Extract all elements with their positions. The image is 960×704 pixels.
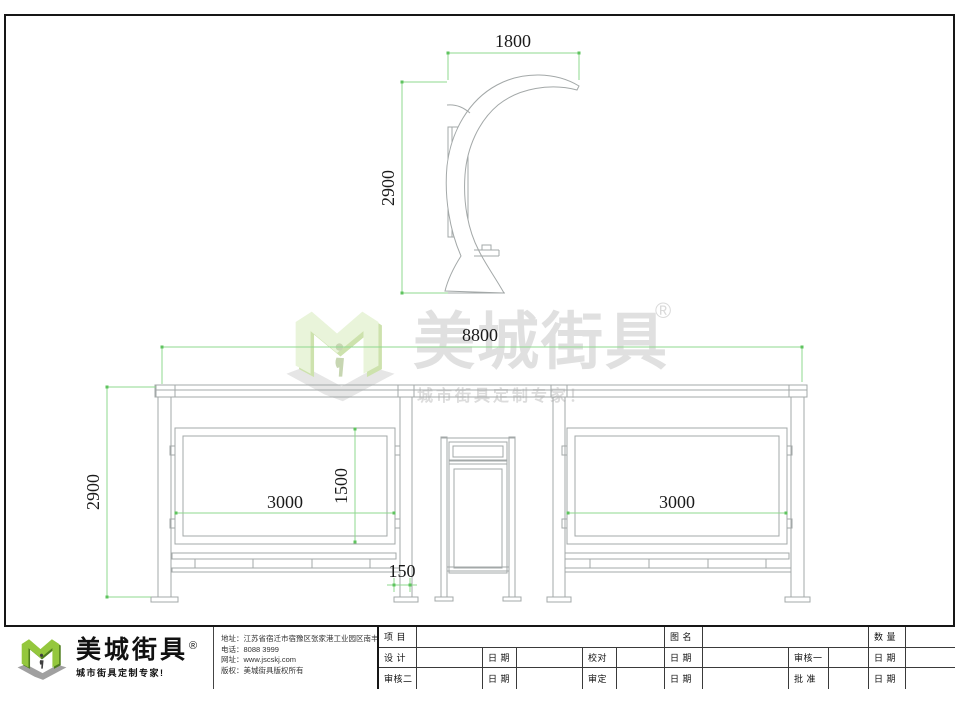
approve-value-cell xyxy=(617,668,665,689)
ratify-value-cell xyxy=(829,668,869,689)
check-label-cell: 校对 xyxy=(583,648,617,669)
date-label-cell: 日 期 xyxy=(665,648,703,669)
quantity-value-cell xyxy=(906,627,955,648)
date-label-cell: 日 期 xyxy=(483,648,517,669)
company-contact-block: 地址：江苏省宿迁市宿豫区张家港工业园区南丰路西侧1号 电话：8088 3999 … xyxy=(213,627,377,689)
review2-value-cell xyxy=(417,668,483,689)
date-label-cell: 日 期 xyxy=(483,668,517,689)
approve-label-cell: 审定 xyxy=(583,668,617,689)
quantity-label-cell: 数 量 xyxy=(869,627,906,648)
drawing-name-label-cell: 图 名 xyxy=(665,627,703,648)
date-value-cell xyxy=(906,668,955,689)
date-label-cell: 日 期 xyxy=(869,668,906,689)
date-value-cell xyxy=(703,668,789,689)
design-value-cell xyxy=(417,648,483,669)
phone-line: 电话：8088 3999 xyxy=(221,645,374,656)
drawing-info-table: 项 目 图 名 数 量 设 计 日 期 校对 日 期 审核一 日 期 审核二 日… xyxy=(377,627,955,689)
date-value-cell xyxy=(703,648,789,669)
date-value-cell xyxy=(517,648,583,669)
project-value-cell xyxy=(417,627,665,648)
date-value-cell xyxy=(517,668,583,689)
address-line: 地址：江苏省宿迁市宿豫区张家港工业园区南丰路西侧1号 xyxy=(221,634,374,645)
project-label-cell: 项 目 xyxy=(379,627,417,648)
company-brand-text: 美城街具 xyxy=(76,636,188,664)
company-logo-block: 美城街具® 城市街具定制专家! xyxy=(4,627,213,689)
review2-label-cell: 审核二 xyxy=(379,668,417,689)
website-line: 网址：www.jscskj.com xyxy=(221,655,374,666)
company-tagline: 城市街具定制专家! xyxy=(76,666,199,679)
date-label-cell: 日 期 xyxy=(665,668,703,689)
copyright-line: 版权：美城街具版权所有 xyxy=(221,666,374,677)
check-value-cell xyxy=(617,648,665,669)
sheet-border xyxy=(4,14,955,689)
date-label-cell: 日 期 xyxy=(869,648,906,669)
drawing-name-value-cell xyxy=(703,627,869,648)
ratify-label-cell: 批 准 xyxy=(789,668,829,689)
company-registered-icon: ® xyxy=(189,640,200,652)
title-block: 美城街具® 城市街具定制专家! 地址：江苏省宿迁市宿豫区张家港工业园区南丰路西侧… xyxy=(4,625,955,689)
date-value-cell xyxy=(906,648,955,669)
company-m-logo-icon xyxy=(16,634,68,682)
review1-value-cell xyxy=(829,648,869,669)
review1-label-cell: 审核一 xyxy=(789,648,829,669)
design-label-cell: 设 计 xyxy=(379,648,417,669)
